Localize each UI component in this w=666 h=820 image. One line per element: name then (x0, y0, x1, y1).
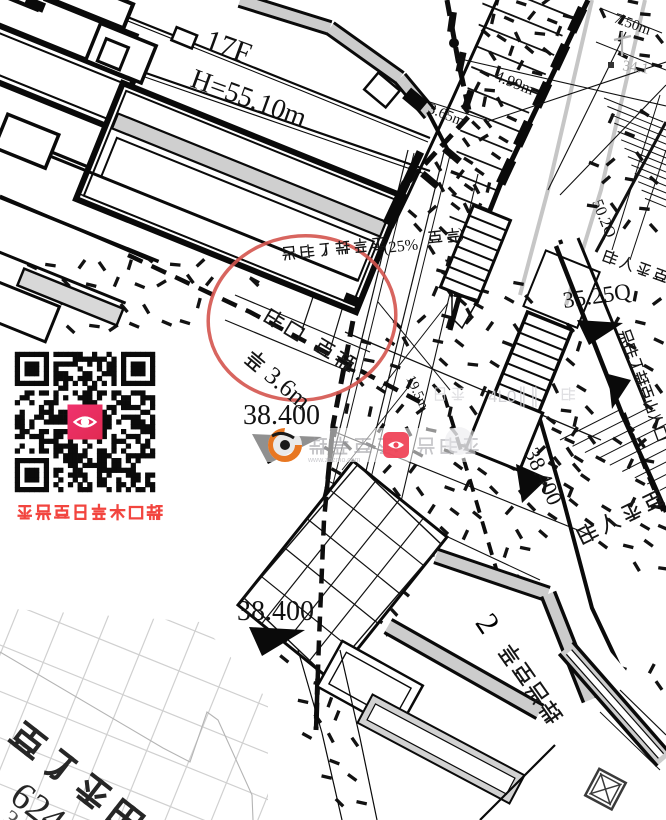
svg-text:www.znzmo.com: www.znzmo.com (307, 457, 361, 464)
svg-text:38.400: 38.400 (243, 400, 320, 431)
svg-text:4L0║║: 4L0║║ (488, 386, 540, 408)
svg-text:38.400: 38.400 (237, 596, 314, 627)
svg-text:(25%: (25% (383, 236, 419, 257)
